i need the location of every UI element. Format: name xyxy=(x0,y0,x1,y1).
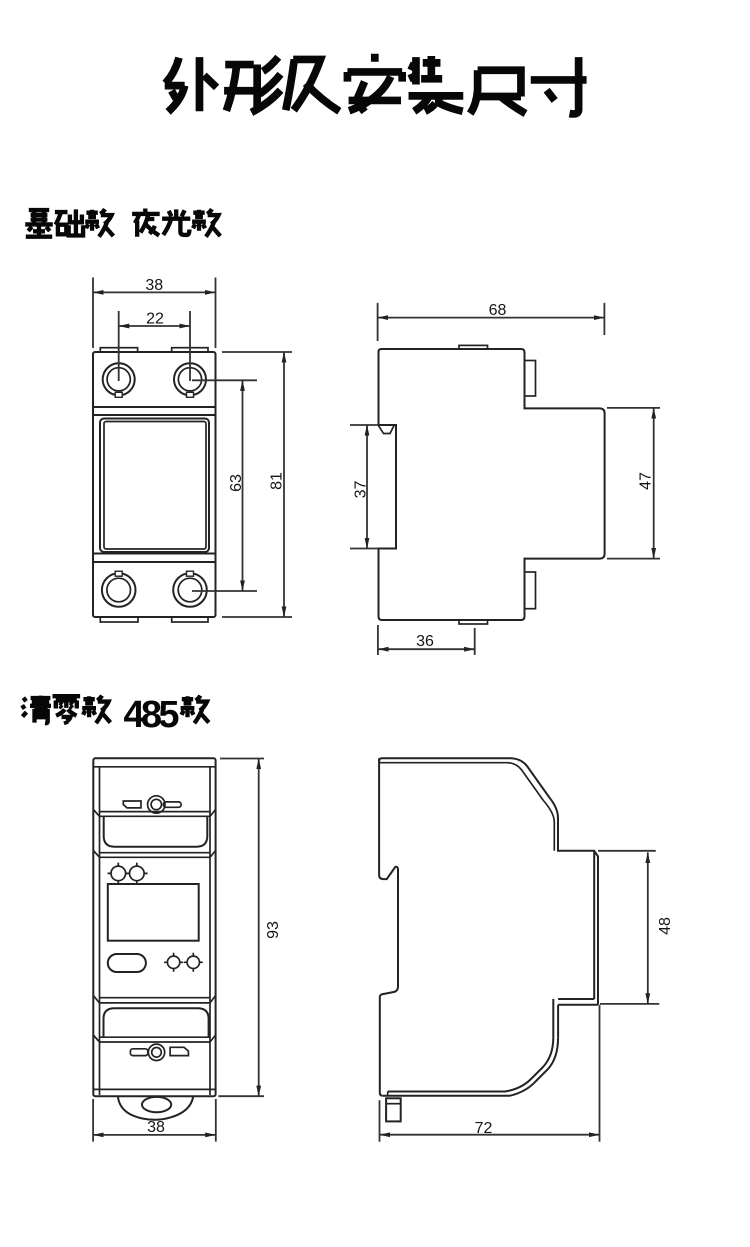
svg-text:485: 485 xyxy=(124,694,180,736)
svg-text:72: 72 xyxy=(475,1120,493,1137)
svg-text:38: 38 xyxy=(147,1119,165,1136)
svg-text:63: 63 xyxy=(228,474,245,492)
svg-text:22: 22 xyxy=(146,310,164,327)
svg-text:47: 47 xyxy=(638,472,655,490)
svg-text:36: 36 xyxy=(416,633,434,650)
svg-text:68: 68 xyxy=(489,302,507,319)
svg-text:93: 93 xyxy=(265,921,282,939)
svg-text:37: 37 xyxy=(353,481,370,499)
svg-text:81: 81 xyxy=(269,472,286,490)
svg-text:38: 38 xyxy=(145,277,163,294)
svg-text:48: 48 xyxy=(657,917,674,935)
